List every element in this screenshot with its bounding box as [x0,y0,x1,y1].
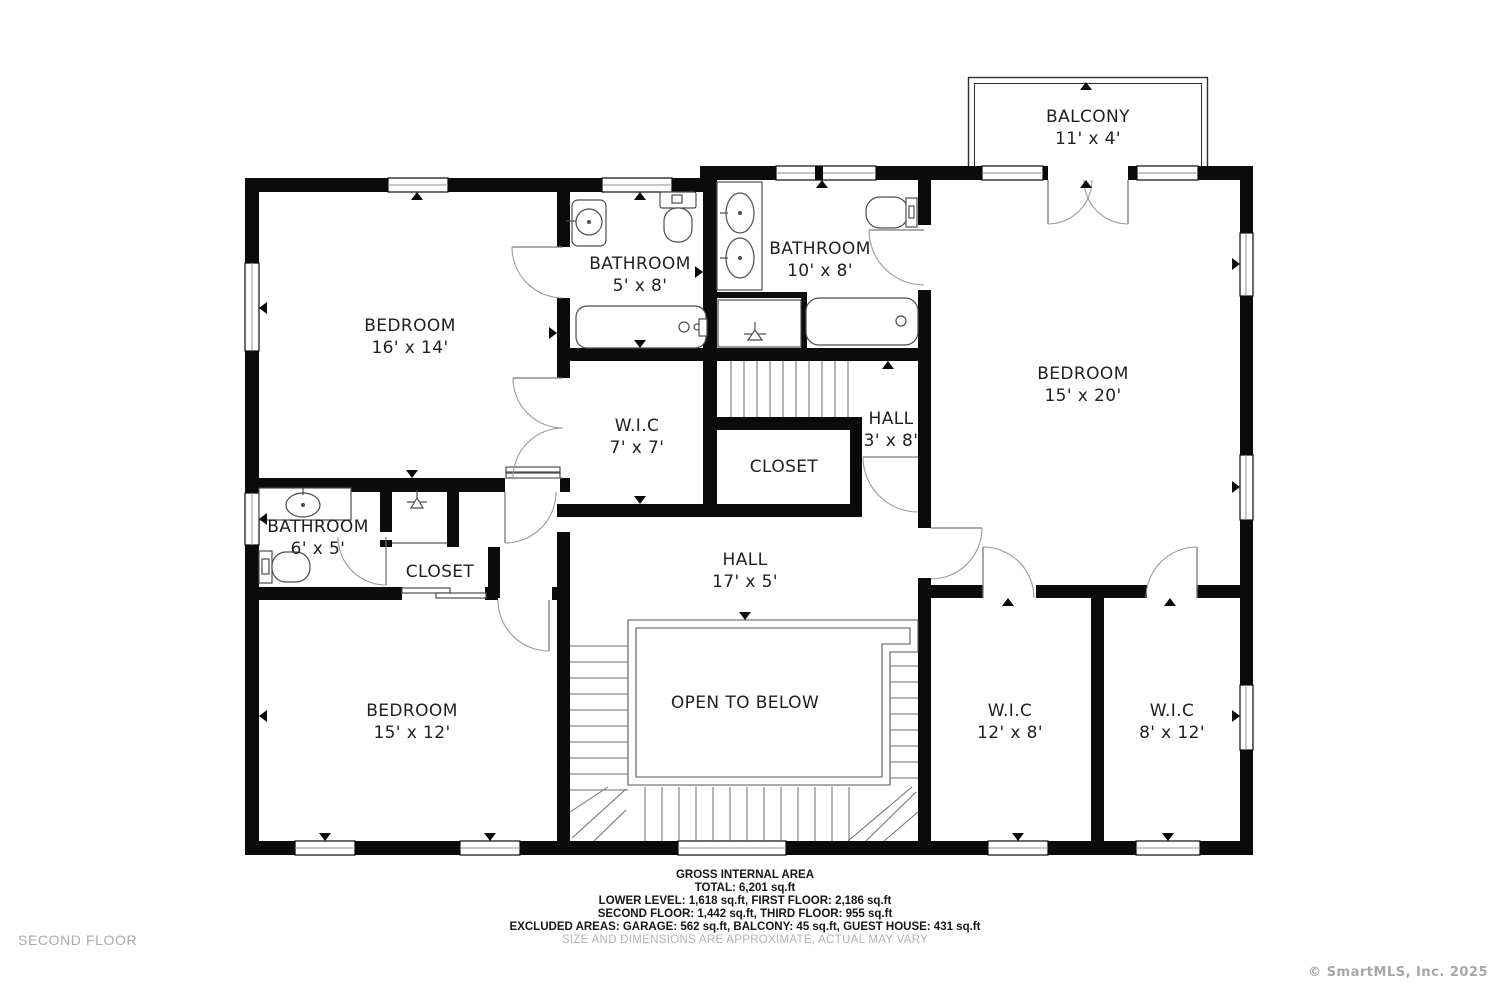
sink-icon [566,200,606,246]
area-summary-title: GROSS INTERNAL AREA [510,869,981,882]
bathtub-icon [806,298,918,345]
door-icon [863,457,918,512]
balcony-door-gap [1048,166,1128,180]
door-icon [1146,547,1197,598]
floor-name-label: SECOND FLOOR [18,932,137,948]
double-sink-icon [717,182,762,290]
room-label-bedroom-15x12: BEDROOM15' x 12' [366,700,458,744]
area-disclaimer: SIZE AND DIMENSIONS ARE APPROXIMATE, ACT… [510,934,981,947]
area-second-third: SECOND FLOOR: 1,442 sq.ft, THIRD FLOOR: … [510,908,981,921]
floorplan-canvas: BALCONY11' x 4' BATHROOM5' x 8' BATHROOM… [0,0,1500,997]
room-label-wic-8x12: W.I.C8' x 12' [1139,700,1205,744]
room-label-open-to-below: OPEN TO BELOW [671,692,819,714]
door-icon [983,547,1034,598]
door-icon [498,600,549,651]
room-label-closet-left: CLOSET [406,561,474,583]
door-icon [513,378,563,428]
door-icon [505,492,556,543]
room-label-balcony: BALCONY11' x 4' [1046,106,1130,150]
room-label-wic-12x8: W.I.C12' x 8' [977,700,1043,744]
area-lower-first: LOWER LEVEL: 1,618 sq.ft, FIRST FLOOR: 2… [510,895,981,908]
toilet-icon [866,197,917,228]
room-label-bathroom-5x8: BATHROOM5' x 8' [589,253,691,297]
room-label-hall-3x8: HALL3' x 8' [864,408,919,452]
door-icon [931,528,982,579]
area-total: TOTAL: 6,201 sq.ft [510,882,981,895]
room-label-hall-17x5: HALL17' x 5' [712,549,778,593]
toilet-icon [660,192,696,242]
area-excluded: EXCLUDED AREAS: GARAGE: 562 sq.ft, BALCO… [510,921,981,934]
room-label-wic-7x7: W.I.C7' x 7' [610,415,665,459]
room-label-bathroom-6x5: BATHROOM6' x 5' [267,516,369,560]
floorplan-drawing [0,0,1500,997]
room-label-closet-center: CLOSET [750,456,818,478]
shower-icon [718,300,801,347]
room-label-bathroom-10x8: BATHROOM10' x 8' [769,238,871,282]
copyright-label: © SmartMLS, Inc. 2025 [1308,965,1488,980]
stairs-upper [731,361,848,417]
door-icon [869,230,924,285]
room-label-bedroom-15x20: BEDROOM15' x 20' [1037,363,1129,407]
shower-icon [392,490,447,543]
stairs-main [570,646,918,841]
area-summary: GROSS INTERNAL AREA TOTAL: 6,201 sq.ft L… [510,869,981,947]
room-label-bedroom-16x14: BEDROOM16' x 14' [364,315,456,359]
door-icon [512,247,563,298]
